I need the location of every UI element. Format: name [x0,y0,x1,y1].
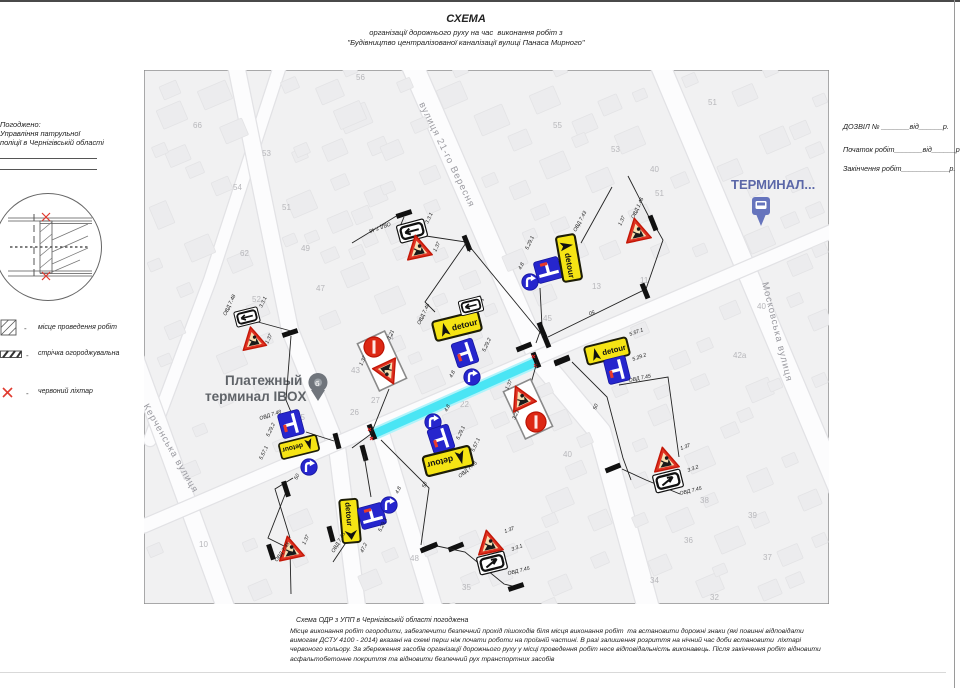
svg-text:40: 40 [757,302,766,311]
svg-text:49: 49 [301,244,310,253]
svg-text:37: 37 [763,553,772,562]
svg-text:38: 38 [700,496,709,505]
svg-text:62: 62 [240,249,249,258]
svg-text:терминал IBOX: терминал IBOX [205,389,306,404]
svg-text:-: - [24,324,27,333]
svg-text:Платежный: Платежный [225,373,302,388]
svg-text:39: 39 [748,511,757,520]
svg-text:10: 10 [199,540,208,549]
svg-text:54: 54 [233,183,242,192]
svg-text:53: 53 [262,149,271,158]
svg-text:13: 13 [592,282,601,291]
svg-text:47: 47 [316,284,325,293]
svg-text:-: - [26,389,29,398]
svg-text:45: 45 [543,314,552,323]
svg-text:35: 35 [462,583,471,592]
svg-text:27: 27 [371,396,380,405]
svg-text:-: - [26,351,29,360]
svg-text:40: 40 [563,450,572,459]
svg-text:53: 53 [611,145,620,154]
svg-text:б: б [315,379,320,388]
svg-text:48: 48 [410,554,419,563]
svg-text:26: 26 [350,408,359,417]
svg-text:51: 51 [708,98,717,107]
svg-text:36: 36 [684,536,693,545]
svg-text:32: 32 [710,593,719,602]
svg-text:55: 55 [553,121,562,130]
svg-text:66: 66 [193,121,202,130]
svg-text:42а: 42а [733,351,747,360]
svg-text:43: 43 [351,366,360,375]
svg-text:51: 51 [655,189,664,198]
svg-text:ТЕРМИНАЛ...: ТЕРМИНАЛ... [731,177,815,192]
svg-text:40: 40 [650,165,659,174]
svg-text:51: 51 [282,203,291,212]
svg-text:34: 34 [650,576,659,585]
svg-text:56: 56 [356,73,365,82]
